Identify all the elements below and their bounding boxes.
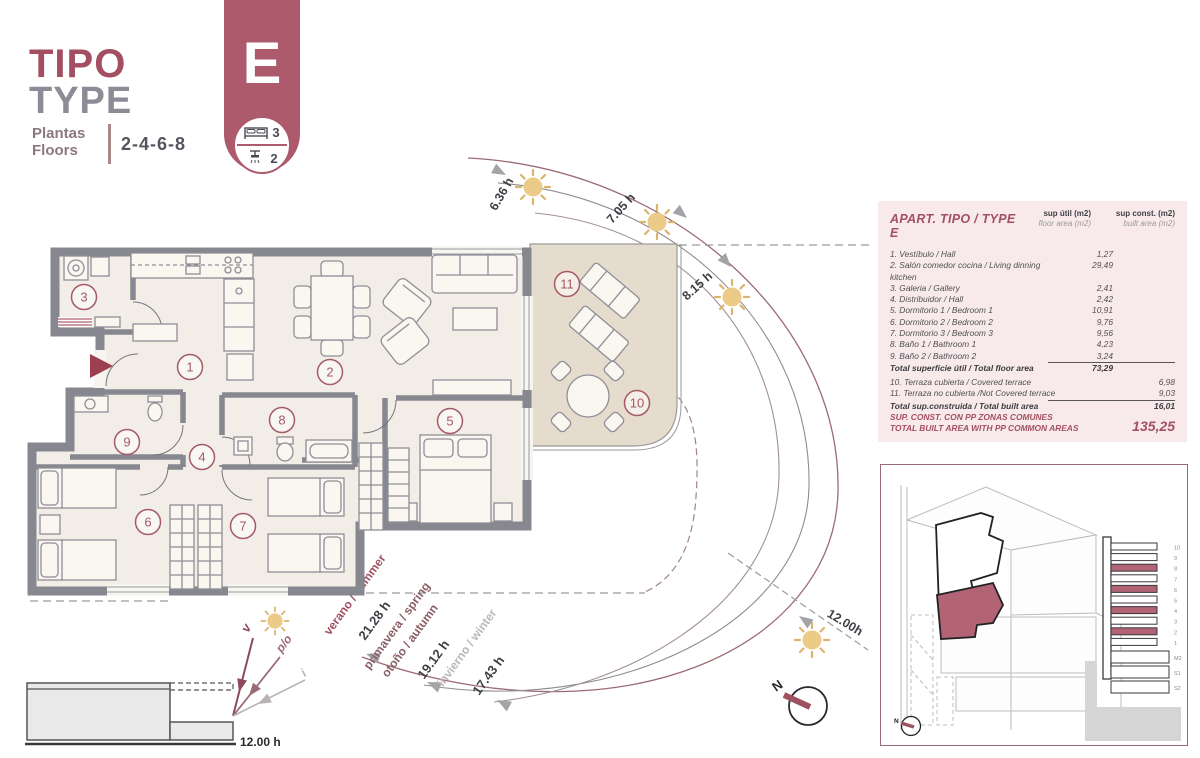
bathtub — [306, 440, 352, 462]
section-floor-label: 7 — [1174, 577, 1177, 583]
summer-abbr: v — [238, 620, 255, 634]
spring-autumn-abbr: p/o — [272, 632, 295, 656]
section-floor-bar — [1111, 681, 1169, 693]
table-row: 10. Terraza cubierta / Covered terrace6,… — [890, 377, 1175, 388]
section-floor-bar — [1111, 617, 1157, 624]
wardrobe — [170, 505, 194, 589]
kitchen-column — [224, 279, 254, 351]
sunrise-time-winter: 8.15 h — [679, 269, 715, 303]
table-row: 5. Dormitorio 1 / Bedroom 110,91 — [890, 305, 1175, 316]
floor-area-rows: 1. Vestíbulo / Hall1,272. Salón comedor … — [890, 249, 1175, 362]
section-floor-label: 1 — [1174, 641, 1177, 647]
room-number-badge: 1 — [178, 355, 203, 380]
table-row: 8. Baño 1 / Bathroom 14,23 — [890, 339, 1175, 350]
section-floor-label: 3 — [1174, 620, 1177, 626]
shelf — [95, 317, 120, 327]
room-number-badge: 6 — [136, 510, 161, 535]
section-floor-bar — [1111, 543, 1157, 550]
site-plan-drawing: 10987654321M2S1S2 N — [881, 465, 1186, 744]
room-number-badge: 3 — [72, 285, 97, 310]
room-number-badge: 9 — [115, 430, 140, 455]
svg-text:10: 10 — [630, 396, 644, 411]
sofa — [432, 255, 517, 293]
room-number-badge: 8 — [270, 408, 295, 433]
table-row: 6. Dormitorio 2 / Bedroom 29,76 — [890, 317, 1175, 328]
areas-table-title: APART. TIPO / TYPE E — [890, 209, 1017, 240]
section-floor-bar — [1111, 607, 1157, 614]
common-areas-footer: SUP. CONST. CON PP ZONAS COMUNES TOTAL B… — [890, 412, 1175, 434]
section-floor-label: 8 — [1174, 567, 1177, 573]
terrace-rows: 10. Terraza cubierta / Covered terrace6,… — [890, 377, 1175, 400]
svg-text:3: 3 — [80, 290, 87, 305]
appliance — [91, 257, 109, 276]
site-location-box: 10987654321M2S1S2 N — [880, 464, 1188, 746]
table-row: 9. Baño 2 / Bathroom 23,24 — [890, 351, 1175, 362]
site-compass: N — [894, 717, 921, 736]
table-row: 2. Salón comedor cocina / Living dinning… — [890, 260, 1175, 283]
svg-text:11: 11 — [560, 277, 574, 292]
svg-text:2: 2 — [326, 365, 333, 380]
section-sun-icon — [261, 607, 288, 634]
terrace — [530, 244, 681, 450]
section-floor-bar — [1111, 585, 1157, 592]
single-bed — [38, 468, 116, 508]
wardrobe — [198, 505, 222, 589]
compass: N — [769, 677, 827, 725]
toilet — [277, 437, 293, 461]
section-floor-label: 10 — [1174, 546, 1180, 552]
sunrise-sun-summer-icon — [516, 170, 550, 204]
sunrise-sun-winter-icon — [715, 280, 749, 314]
svg-text:9: 9 — [123, 435, 130, 450]
floor-area-column-header: sup útil (m2)floor area (m2) — [1017, 209, 1091, 240]
areas-table-panel: APART. TIPO / TYPE E sup útil (m2)floor … — [878, 201, 1187, 442]
tv-sideboard — [433, 380, 511, 395]
north-label: N — [769, 677, 785, 695]
svg-text:8: 8 — [278, 413, 285, 428]
room-number-badge: 10 — [625, 391, 650, 416]
sink — [234, 437, 252, 455]
footer-line-es: SUP. CONST. CON PP ZONAS COMUNES — [890, 412, 1132, 423]
built-area-column-header: sup const. (m2)built area (m2) — [1101, 209, 1175, 240]
nightstand — [40, 515, 60, 534]
hall-console — [133, 324, 177, 341]
section-floor-bar — [1111, 638, 1157, 645]
single-bed — [38, 540, 116, 580]
section-floor-bar — [1111, 554, 1157, 561]
svg-text:6: 6 — [144, 515, 151, 530]
room-number-badge: 11 — [555, 272, 580, 297]
wardrobe — [388, 448, 409, 522]
section-floor-label: 5 — [1174, 599, 1177, 605]
nightstand — [494, 503, 512, 521]
svg-text:4: 4 — [198, 450, 205, 465]
window — [521, 408, 533, 480]
section-floor-bar — [1111, 575, 1157, 582]
washing-machine — [64, 256, 88, 280]
total-built-row: Total sup.construida / Total built area … — [890, 401, 1175, 412]
section-floor-label: 6 — [1174, 588, 1177, 594]
table-row: 11. Terraza no cubierta /Not Covered ter… — [890, 388, 1175, 399]
table-row: 7. Dormitorio 3 / Bedroom 39,56 — [890, 328, 1175, 339]
brochure-page: TIPO TYPE Plantas Floors 2-4-6-8 E 3 — [0, 0, 1200, 758]
table-row: 1. Vestíbulo / Hall1,27 — [890, 249, 1175, 260]
sunrise-time-summer: 6.36 h — [487, 175, 517, 213]
window — [228, 584, 288, 596]
room-number-badge: 4 — [190, 445, 215, 470]
svg-text:7: 7 — [239, 519, 246, 534]
kitchen-counter — [131, 253, 253, 278]
section-floor-bar — [1111, 564, 1157, 571]
winter-abbr: i — [298, 666, 310, 679]
single-bed — [268, 534, 344, 572]
building-section: 10987654321M2S1S2 — [1085, 537, 1182, 741]
room-number-badge: 2 — [318, 360, 343, 385]
section-floor-bar — [1111, 596, 1157, 603]
room-number-badge: 5 — [438, 409, 463, 434]
room-number-badge: 7 — [231, 514, 256, 539]
section-time-label: 12.00 h — [240, 735, 281, 749]
table-row: 3. Galeria / Gallery2,41 — [890, 283, 1175, 294]
sunrise-sun-spring-icon — [640, 205, 674, 239]
sun-section-diagram: v p/o i 12.00 h — [25, 607, 310, 749]
noon-time-label: 12.00h — [825, 607, 866, 639]
vent-grille — [58, 317, 92, 327]
section-floor-label: S2 — [1174, 686, 1181, 692]
double-bed — [420, 435, 491, 523]
kitchen-island — [227, 354, 253, 380]
total-floor-row: Total superficie útil / Total floor area… — [890, 363, 1175, 374]
section-floor-label: 4 — [1174, 609, 1177, 615]
site-north-label: N — [894, 718, 899, 725]
svg-text:1: 1 — [186, 360, 193, 375]
section-floor-bar — [1111, 651, 1169, 663]
coffee-table — [453, 308, 497, 330]
wardrobe — [359, 443, 383, 530]
total-with-common-areas-value: 135,25 — [1132, 418, 1175, 434]
section-floor-label: 2 — [1174, 630, 1177, 636]
table-row: 4. Distribuidor / Hall2,42 — [890, 294, 1175, 305]
section-floor-bar — [1111, 666, 1169, 678]
window — [107, 584, 169, 596]
noon-sun-icon — [795, 623, 829, 657]
section-floor-bar — [1111, 628, 1157, 635]
section-floor-label: S1 — [1174, 671, 1181, 677]
section-floor-label: M2 — [1174, 656, 1182, 662]
footer-line-en: TOTAL BUILT AREA WITH PP COMMON AREAS — [890, 423, 1132, 434]
vanity — [74, 396, 108, 412]
window — [521, 296, 533, 390]
single-bed — [268, 478, 344, 516]
section-floor-label: 9 — [1174, 556, 1177, 562]
toilet — [148, 396, 162, 421]
svg-text:5: 5 — [446, 414, 453, 429]
